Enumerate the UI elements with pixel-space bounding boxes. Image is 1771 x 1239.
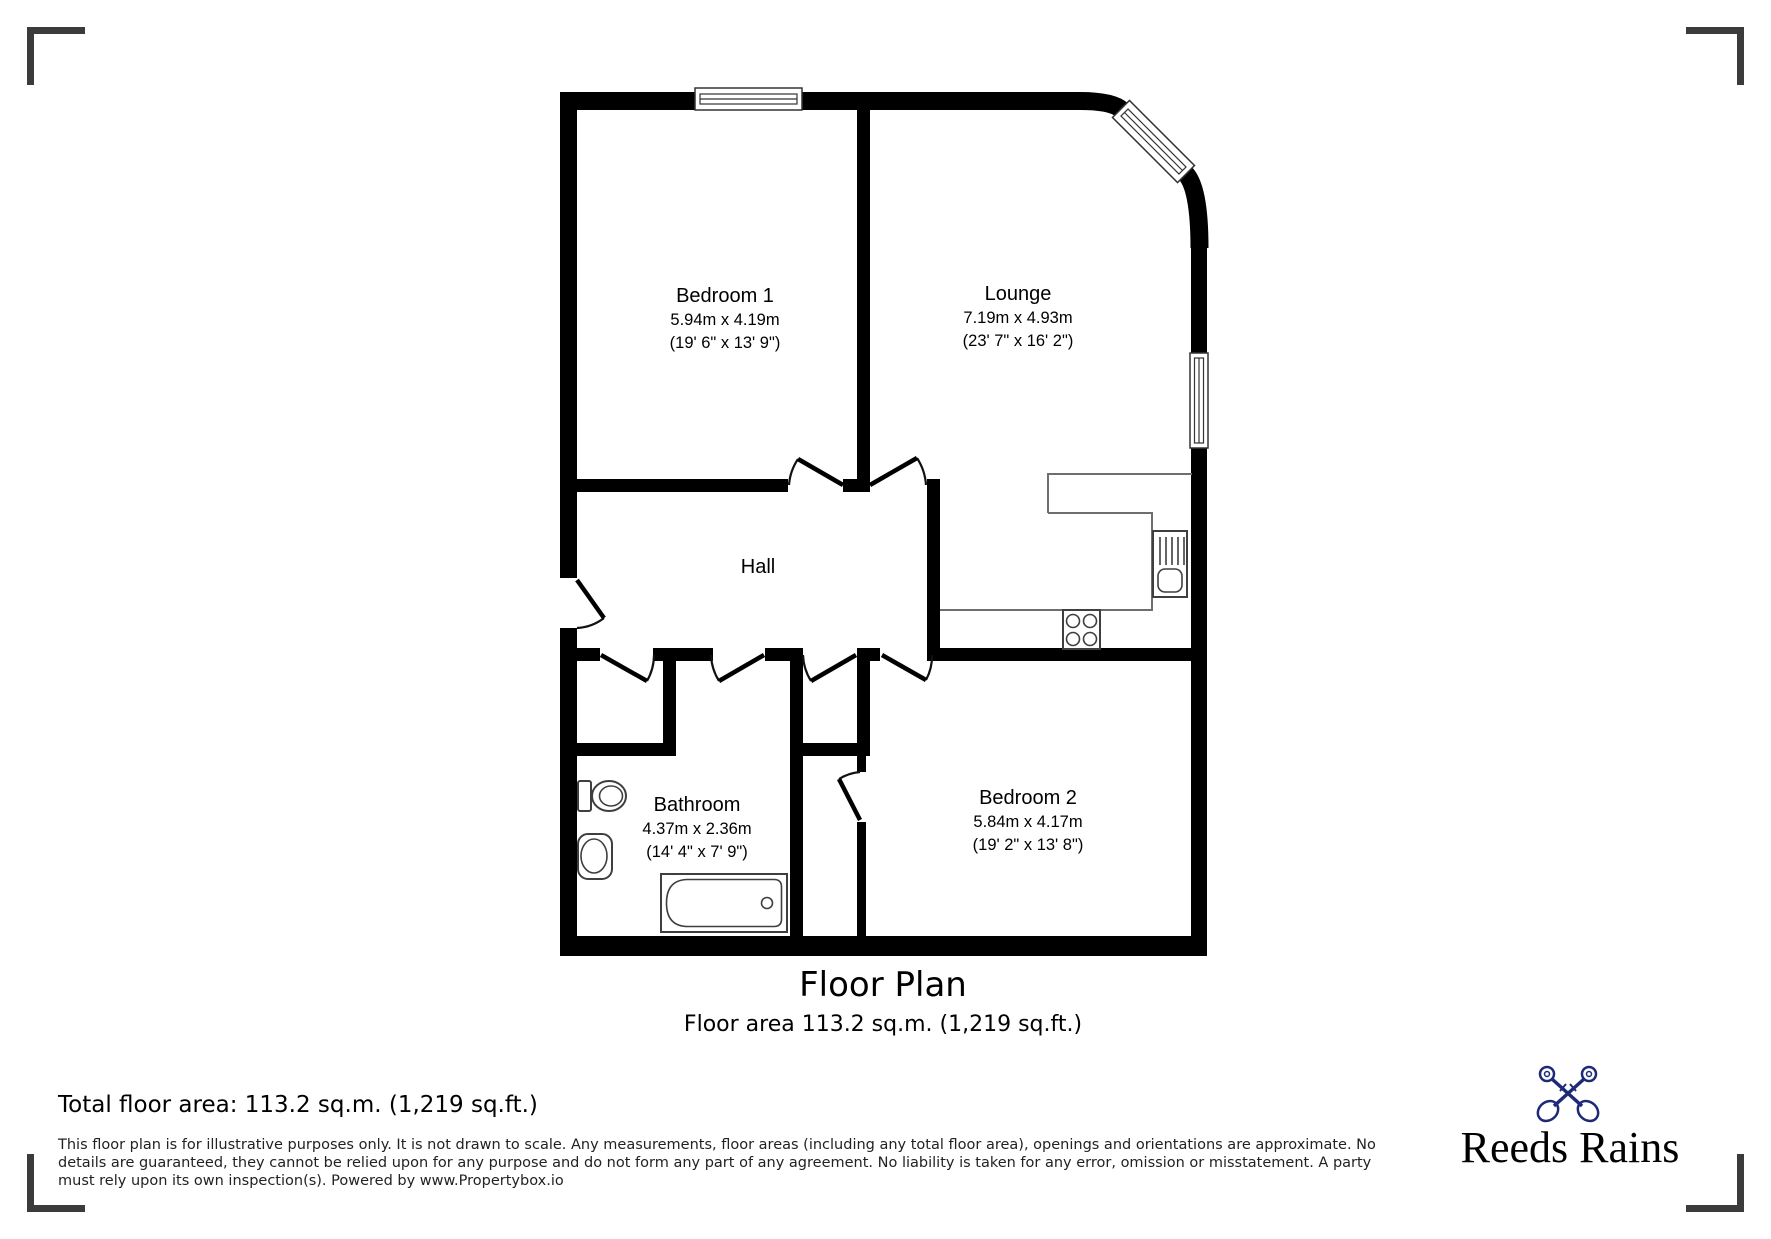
- window-bedroom1-top: [695, 88, 802, 110]
- plan-title: Floor Plan: [799, 965, 967, 1005]
- bathroom-size-imperial: (14' 4" x 7' 9"): [646, 843, 747, 861]
- kitchen-counter-top: [1048, 474, 1192, 513]
- wall-hall-bottom-seg2: [653, 648, 713, 661]
- window-lounge-right: [1190, 353, 1208, 448]
- total-floor-area: Total floor area: 113.2 sq.m. (1,219 sq.…: [57, 1092, 538, 1118]
- bedroom1-size-imperial: (19' 6" x 13' 9"): [670, 334, 781, 352]
- doors: [577, 458, 932, 820]
- wall-bedroom2-left-stub: [857, 756, 866, 772]
- room-label-lounge: Lounge 7.19m x 4.93m (23' 7" x 16' 2"): [963, 283, 1074, 350]
- bedroom2-size-metric: 5.84m x 4.17m: [973, 813, 1082, 831]
- wall-outer-bottom: [560, 936, 1207, 956]
- lounge-size-metric: 7.19m x 4.93m: [963, 309, 1072, 327]
- disclaimer-line1: This floor plan is for illustrative purp…: [57, 1137, 1376, 1153]
- floor-plan-page: Bedroom 1 5.94m x 4.19m (19' 6" x 13' 9"…: [0, 0, 1771, 1239]
- wall-closet2-bottom: [803, 743, 870, 756]
- door-bedroom1-entrance: [789, 459, 843, 485]
- bathroom-size-metric: 4.37m x 2.36m: [642, 820, 751, 838]
- wall-outer-top: [560, 92, 1080, 110]
- footer: Total floor area: 113.2 sq.m. (1,219 sq.…: [57, 1092, 1376, 1189]
- lounge-size-imperial: (23' 7" x 16' 2"): [963, 332, 1074, 350]
- room-label-bathroom: Bathroom 4.37m x 2.36m (14' 4" x 7' 9"): [642, 794, 751, 861]
- wall-outer-right: [1191, 240, 1207, 956]
- wall-hall-bottom-seg1: [577, 648, 600, 661]
- disclaimer-line3: must rely upon its own inspection(s). Po…: [58, 1173, 564, 1189]
- bedroom1-name: Bedroom 1: [676, 285, 774, 307]
- floor-plan-canvas: Bedroom 1 5.94m x 4.19m (19' 6" x 13' 9"…: [0, 0, 1771, 1239]
- brand-logo: Reeds Rains: [1461, 1067, 1680, 1172]
- room-label-bedroom2: Bedroom 2 5.84m x 4.17m (19' 2" x 13' 8"…: [973, 787, 1084, 854]
- windows: [695, 88, 1208, 448]
- bedroom1-size-metric: 5.94m x 4.19m: [670, 311, 779, 329]
- basin-icon: [578, 834, 612, 879]
- plan-subtitle: Floor area 113.2 sq.m. (1,219 sq.ft.): [684, 1012, 1082, 1037]
- corner-mark-bottom-right: [1686, 1154, 1741, 1209]
- wall-hall-kitchen: [927, 479, 940, 661]
- door-bathroom: [711, 655, 764, 681]
- door-flat-entrance: [577, 580, 604, 628]
- door-closet1: [601, 655, 654, 681]
- lounge-name: Lounge: [985, 283, 1052, 305]
- wall-outer-left-upper: [560, 92, 577, 578]
- door-closet2: [803, 655, 856, 681]
- corner-mark-top-right: [1686, 31, 1741, 86]
- wall-bedroom1-lounge-divider: [857, 92, 870, 492]
- door-bedroom2-entrance: [882, 655, 932, 680]
- hall-name: Hall: [741, 556, 775, 578]
- corner-mark-top-left: [31, 31, 86, 86]
- wall-bedroom2-left-lower: [857, 822, 866, 936]
- bathroom-name: Bathroom: [654, 794, 741, 816]
- wall-bathroom-right: [790, 648, 803, 936]
- door-bedroom2-wardrobe: [839, 772, 860, 820]
- wall-bedroom2-left-upper: [857, 648, 870, 755]
- bedroom2-size-imperial: (19' 2" x 13' 8"): [973, 836, 1084, 854]
- room-label-bedroom1: Bedroom 1 5.94m x 4.19m (19' 6" x 13' 9"…: [670, 285, 781, 352]
- crossed-keys-icon: [1534, 1067, 1602, 1125]
- window-lounge-corner: [1112, 100, 1194, 182]
- kitchen-counter-front: [940, 513, 1152, 610]
- wall-closet1-bottom: [577, 743, 676, 756]
- room-label-hall: Hall: [741, 556, 775, 578]
- disclaimer-line2: details are guaranteed, they cannot be r…: [58, 1155, 1372, 1171]
- wall-outer-left-lower: [560, 628, 577, 956]
- hob-icon: [1063, 610, 1100, 649]
- toilet-icon: [578, 781, 626, 811]
- brand-name: Reeds Rains: [1461, 1123, 1680, 1172]
- bedroom2-name: Bedroom 2: [979, 787, 1077, 809]
- wall-bedroom1-hall: [577, 479, 788, 492]
- kitchen-units: [940, 474, 1192, 649]
- bathtub-icon: [661, 874, 787, 932]
- wall-bedroom1-hall-stub: [843, 479, 870, 492]
- kitchen-sink-icon: [1153, 531, 1187, 597]
- wall-closet1-right: [663, 648, 676, 748]
- door-lounge-entrance: [870, 458, 926, 485]
